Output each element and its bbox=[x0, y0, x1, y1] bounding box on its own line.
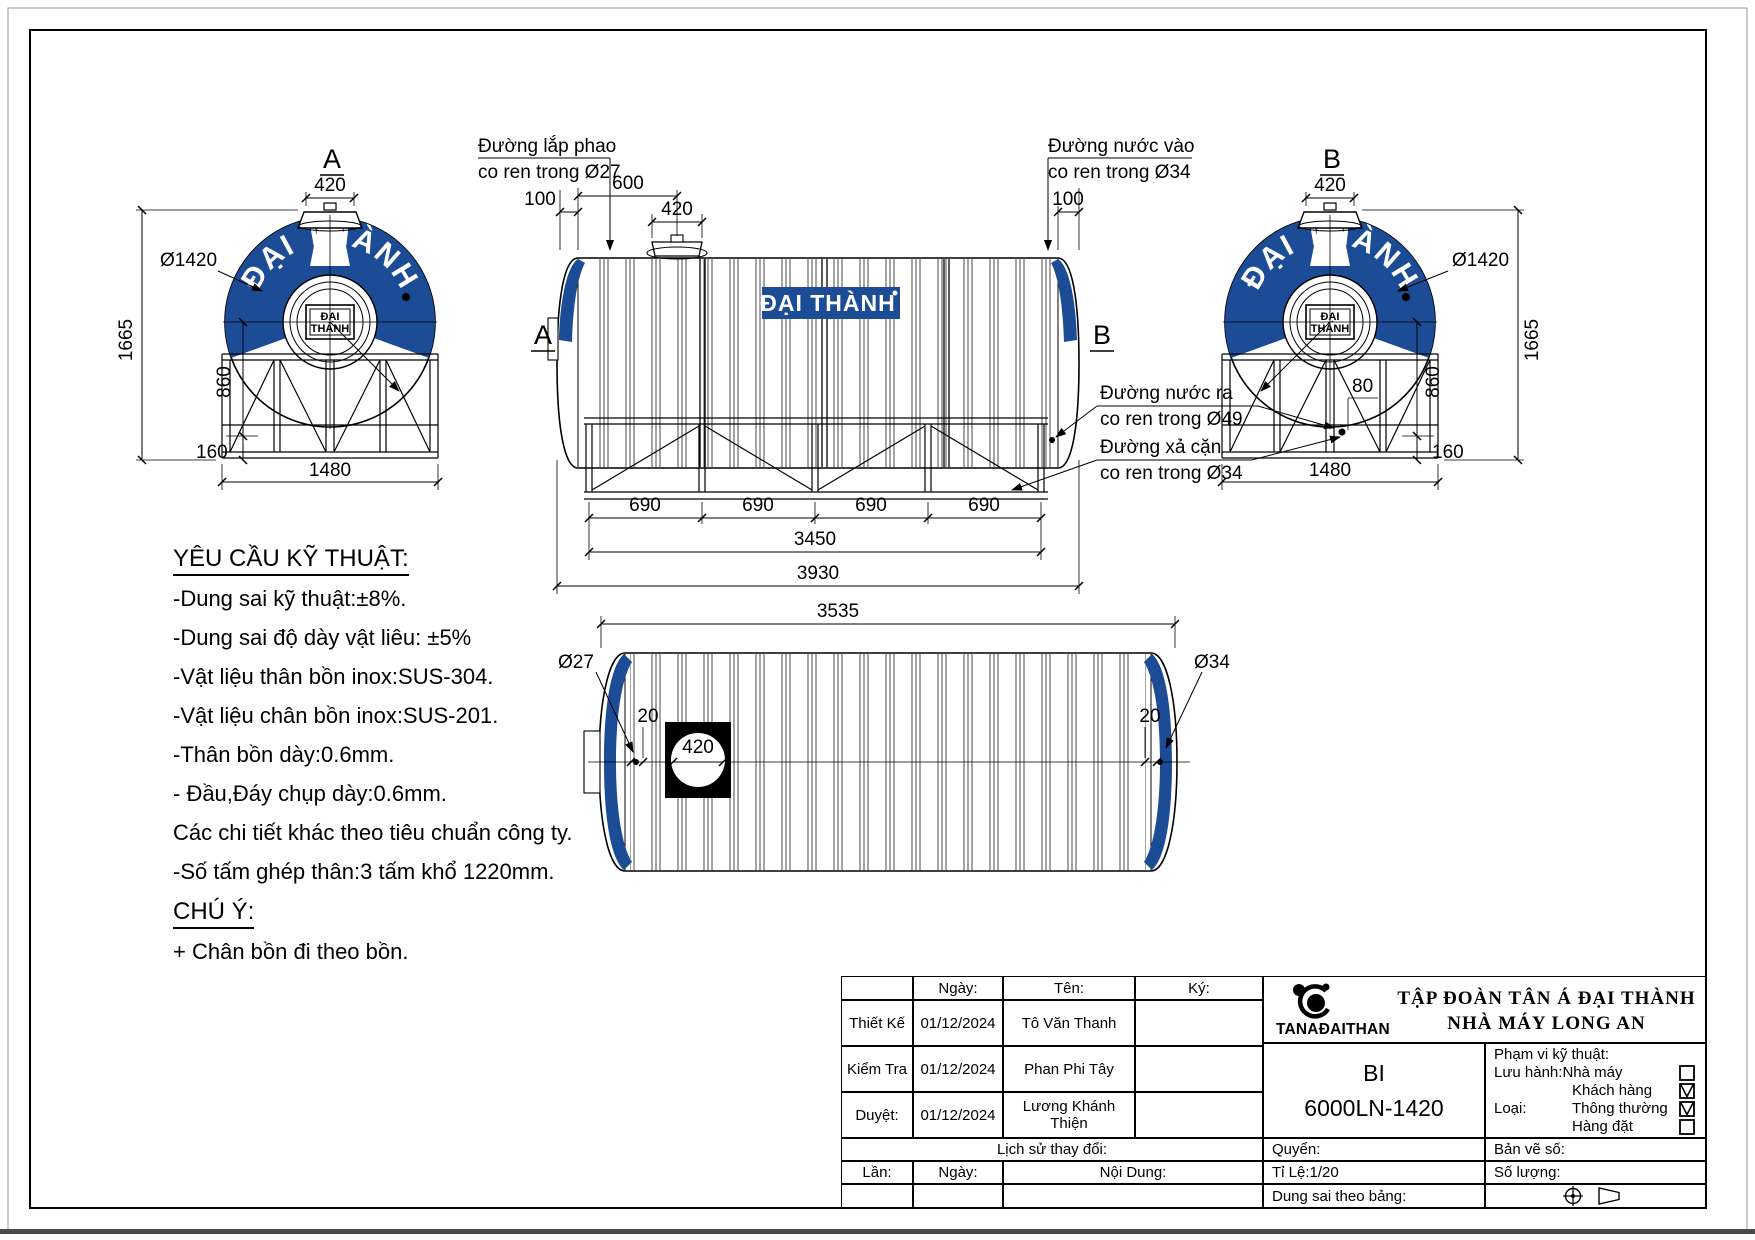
tb-projection-cell bbox=[1485, 1184, 1706, 1208]
dim-3450: 3450 bbox=[794, 529, 836, 550]
float-label-1: Đường lắp phao bbox=[478, 135, 616, 157]
tech-item: -Thân bồn dày:0.6mm. bbox=[173, 742, 593, 768]
tech-item: -Dung sai độ dày vật liêu: ±5% bbox=[173, 625, 593, 651]
tb-blank bbox=[841, 976, 913, 1000]
tech-note-item: + Chân bồn đi theo bồn. bbox=[173, 939, 593, 965]
inlet-label-1: Đường nước vào bbox=[1048, 136, 1194, 157]
tb-rev-date: Ngày: bbox=[913, 1161, 1003, 1184]
drain-label-2: co ren trong Ø34 bbox=[1100, 463, 1243, 484]
scope-opt-custom: Hàng đặt bbox=[1572, 1118, 1633, 1136]
tech-item: -Vật liệu chân bồn inox:SUS-201. bbox=[173, 703, 593, 729]
dim-b-80: 80 bbox=[1352, 376, 1373, 397]
tb-header-date: Ngày: bbox=[913, 976, 1003, 1000]
dim-a-dia: Ø1420 bbox=[160, 250, 217, 271]
view-b-label: B bbox=[1323, 144, 1341, 174]
dim-b-160: 160 bbox=[1432, 442, 1464, 463]
dim-690-4: 690 bbox=[968, 495, 1000, 516]
tb-role-approve: Duyệt: bbox=[841, 1092, 913, 1138]
tb-date-design: 01/12/2024 bbox=[913, 1000, 1003, 1046]
view-side: ĐẠI THÀNH A B Đường lắp phao co ren tron… bbox=[478, 135, 1340, 594]
dim-b-dia: Ø1420 bbox=[1452, 250, 1509, 271]
target-symbol-icon bbox=[1563, 1186, 1583, 1206]
manhole-side bbox=[647, 235, 707, 259]
view-a-label: A bbox=[323, 144, 341, 174]
tb-drawing-no: Bản vẽ số: bbox=[1485, 1138, 1706, 1161]
dim-top-420: 420 bbox=[682, 737, 714, 758]
dim-690-3: 690 bbox=[855, 495, 887, 516]
cone-projection-icon bbox=[1599, 1188, 1619, 1204]
view-b-end: B ĐẠI THÀNH ĐẠI THÀNH bbox=[1222, 144, 1543, 490]
company-line2: NHÀ MÁY LONG AN bbox=[1394, 1011, 1699, 1036]
outlet-label-1: Đường nước ra bbox=[1100, 383, 1233, 404]
technical-requirements: YÊU CẦU KỸ THUẬT: -Dung sai kỹ thuật:±8%… bbox=[173, 545, 593, 978]
section-a-label: A bbox=[534, 320, 552, 350]
dim-3930: 3930 bbox=[797, 563, 839, 584]
tb-rev-no: Lần: bbox=[841, 1161, 913, 1184]
tb-role-design: Thiết Kế bbox=[841, 1000, 913, 1046]
inlet-label-2: co ren trong Ø34 bbox=[1048, 162, 1191, 183]
view-a-end: A ĐẠI THÀNH ĐẠI THÀNH bbox=[116, 144, 438, 490]
dims-side-top: Đường lắp phao co ren trong Ø27 Đường nư… bbox=[478, 135, 1194, 250]
projection-symbols bbox=[1561, 1186, 1631, 1206]
dim-dia34: Ø34 bbox=[1194, 652, 1230, 673]
checkbox-customer bbox=[1679, 1083, 1695, 1099]
tb-header-sign: Ký: bbox=[1135, 976, 1263, 1000]
dim-690-2: 690 bbox=[742, 495, 774, 516]
title-block: Ngày: Tên: Ký: Thiết Kế 01/12/2024 Tô Vă… bbox=[841, 976, 1706, 1208]
dim-a-860: 860 bbox=[214, 366, 235, 398]
drain-label-1: Đường xả cặn bbox=[1100, 437, 1221, 458]
checkbox-standard bbox=[1679, 1101, 1695, 1117]
tb-sign-design bbox=[1135, 1000, 1263, 1046]
tb-model-cell: BI 6000LN-1420 bbox=[1263, 1043, 1485, 1138]
dim-20-right: 20 bbox=[1139, 706, 1160, 727]
section-b-label: B bbox=[1093, 320, 1111, 350]
scope-opt-standard: Thông thường bbox=[1572, 1100, 1668, 1118]
dim-690-1: 690 bbox=[629, 495, 661, 516]
tech-item: - Đầu,Đáy chụp dày:0.6mm. bbox=[173, 781, 593, 807]
scope-opt-factory: Nhà máy bbox=[1562, 1064, 1622, 1081]
manhole-top: 420 bbox=[665, 722, 731, 798]
dim-b-1480: 1480 bbox=[1309, 460, 1351, 481]
dim-a-160: 160 bbox=[196, 442, 228, 463]
tb-scale: Tỉ Lệ:1/20 bbox=[1263, 1161, 1485, 1184]
tb-name-check: Phan Phi Tây bbox=[1003, 1046, 1135, 1092]
brand-plate-text: ĐẠI THÀNH bbox=[760, 289, 896, 316]
view-top: 420 3535 Ø27 Ø34 20 20 bbox=[558, 601, 1230, 871]
tanadaithanh-logo-text: TANAĐAITHANH bbox=[1276, 1021, 1389, 1038]
scope-type-label: Loại: bbox=[1494, 1100, 1527, 1117]
scope-circulation-label: Lưu hành: bbox=[1494, 1064, 1562, 1081]
company-line1: TẬP ĐOÀN TÂN Á ĐẠI THÀNH bbox=[1394, 986, 1699, 1011]
tech-item: -Dung sai kỹ thuật:±8%. bbox=[173, 586, 593, 612]
dim-100-right: 100 bbox=[1052, 189, 1084, 210]
tech-item: -Vật liệu thân bồn inox:SUS-304. bbox=[173, 664, 593, 690]
company-name: TẬP ĐOÀN TÂN Á ĐẠI THÀNH NHÀ MÁY LONG AN bbox=[1394, 986, 1699, 1036]
dim-100-left: 100 bbox=[524, 189, 556, 210]
checkbox-custom bbox=[1679, 1119, 1695, 1135]
tech-item: Các chi tiết khác theo tiêu chuẩn công t… bbox=[173, 820, 593, 846]
dim-20-left: 20 bbox=[637, 706, 658, 727]
dim-side-420: 420 bbox=[661, 199, 693, 220]
dim-600: 600 bbox=[612, 173, 644, 194]
tb-role-check: Kiểm Tra bbox=[841, 1046, 913, 1092]
tb-rev-empty bbox=[841, 1184, 913, 1208]
tb-sign-check bbox=[1135, 1046, 1263, 1092]
tb-scope-cell: Phạm vi kỹ thuật: Lưu hành:Nhà máy Khách… bbox=[1485, 1043, 1706, 1138]
tb-company-cell: TANAĐAITHANH TẬP ĐOÀN TÂN Á ĐẠI THÀNH NH… bbox=[1263, 976, 1706, 1043]
band-dot bbox=[402, 293, 410, 301]
scope-opt-customer: Khách hàng bbox=[1572, 1082, 1652, 1100]
tb-rev-empty bbox=[913, 1184, 1003, 1208]
tb-name-approve: Lương Khánh Thiện bbox=[1003, 1092, 1135, 1138]
tb-rev-empty bbox=[1003, 1184, 1263, 1208]
scope-title: Phạm vi kỹ thuật: bbox=[1494, 1046, 1609, 1063]
dim-b-860: 860 bbox=[1423, 366, 1444, 398]
dim-b-420: 420 bbox=[1314, 175, 1346, 196]
tb-history: Lịch sử thay đổi: bbox=[841, 1138, 1263, 1161]
tb-header-name: Tên: bbox=[1003, 976, 1135, 1000]
tb-tolerance: Dung sai theo bảng: bbox=[1263, 1184, 1485, 1208]
drawing-sheet: A ĐẠI THÀNH ĐẠI THÀNH bbox=[0, 0, 1755, 1240]
dim-a-1665: 1665 bbox=[116, 319, 137, 361]
tb-name-design: Tô Văn Thanh bbox=[1003, 1000, 1135, 1046]
tb-quantity: Số lượng: bbox=[1485, 1161, 1706, 1184]
model-code: 6000LN-1420 bbox=[1304, 1095, 1443, 1122]
dim-a-420: 420 bbox=[314, 175, 346, 196]
dim-a-1480: 1480 bbox=[309, 460, 351, 481]
drain-point-b bbox=[1339, 429, 1346, 436]
tech-title: YÊU CẦU KỸ THUẬT: bbox=[173, 545, 409, 576]
tanadaithanh-logo-icon: TANAĐAITHANH bbox=[1274, 981, 1389, 1041]
model-series: BI bbox=[1363, 1060, 1385, 1087]
tb-rev-content: Nội Dung: bbox=[1003, 1161, 1263, 1184]
tb-rights: Quyển: bbox=[1263, 1138, 1485, 1161]
dim-b-1665: 1665 bbox=[1522, 319, 1543, 361]
tb-date-check: 01/12/2024 bbox=[913, 1046, 1003, 1092]
tech-note-title: CHÚ Ý: bbox=[173, 898, 254, 929]
outlet-label-2: co ren trong Ø49 bbox=[1100, 409, 1243, 430]
checkbox-factory bbox=[1679, 1065, 1695, 1081]
float-label-2: co ren trong Ø27 bbox=[478, 162, 621, 183]
tech-item: -Số tấm ghép thân:3 tấm khổ 1220mm. bbox=[173, 859, 593, 885]
tb-sign-approve bbox=[1135, 1092, 1263, 1138]
tb-date-approve: 01/12/2024 bbox=[913, 1092, 1003, 1138]
dim-3535: 3535 bbox=[817, 601, 859, 622]
